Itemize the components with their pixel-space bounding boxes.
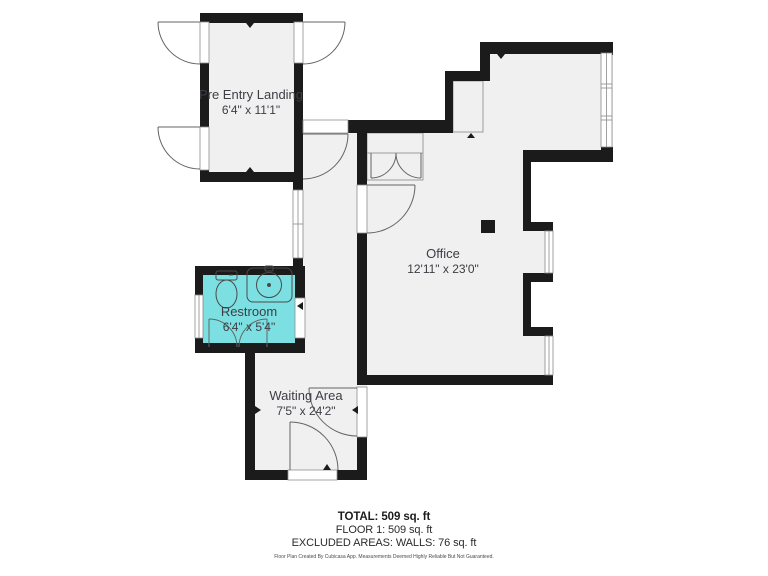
room-dims-office: 12'11" x 23'0" [407, 262, 479, 276]
door-swing [158, 22, 200, 64]
room-label-waiting-area: Waiting Area [269, 388, 343, 403]
floor-plan-page: Pre Entry Landing 6'4" x 11'1" Office 12… [0, 0, 768, 576]
room-label-restroom: Restroom [221, 304, 277, 319]
room-dims-waiting-area: 7'5" x 24'2" [276, 404, 335, 418]
room-label-office: Office [426, 246, 460, 261]
room-dims-pre-entry-landing: 6'4" x 11'1" [222, 103, 280, 117]
excluded-area-text: EXCLUDED AREAS: WALLS: 76 sq. ft [0, 537, 768, 550]
floor-area-text: FLOOR 1: 509 sq. ft [0, 524, 768, 537]
area-summary: TOTAL: 509 sq. ft FLOOR 1: 509 sq. ft EX… [0, 511, 768, 561]
window [195, 295, 203, 338]
window [601, 53, 612, 147]
window [545, 231, 553, 273]
room-label-pre-entry-landing: Pre Entry Landing [199, 87, 303, 102]
floor-plan: Pre Entry Landing 6'4" x 11'1" Office 12… [0, 0, 768, 505]
door-swing [158, 127, 200, 169]
column [481, 220, 495, 233]
window [545, 336, 553, 375]
window [293, 190, 303, 258]
total-area-text: TOTAL: 509 sq. ft [0, 511, 768, 524]
room-dims-restroom: 6'4" x 5'4" [223, 320, 275, 334]
disclaimer-text: Floor Plan Created By Cubicasa App. Meas… [0, 553, 768, 561]
room-office-floor [357, 42, 613, 385]
door-swing [303, 22, 345, 64]
